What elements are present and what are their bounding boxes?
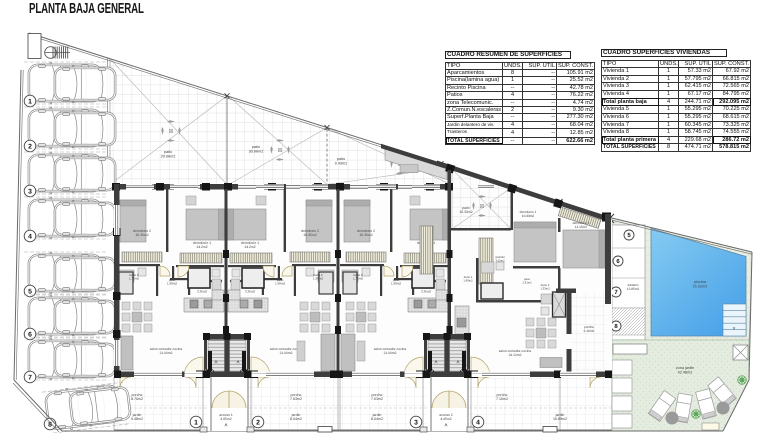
svg-text:˄: ˄ [434,360,438,366]
svg-text:˄: ˄ [444,423,448,429]
svg-text:dormitorio 211.15m2: dormitorio 211.15m2 [573,221,590,229]
svg-text:1: 1 [28,98,32,105]
svg-text:piscina25.52m2: piscina25.52m2 [693,280,708,288]
svg-text:jardin8.04m2: jardin8.04m2 [371,413,383,421]
svg-text:porche8.70m2: porche8.70m2 [131,393,143,401]
svg-text:bano 13.36m2: bano 13.36m2 [245,286,255,294]
svg-text:porche7.10m2: porche7.10m2 [496,393,508,401]
svg-text:dormitorio 210.35m2: dormitorio 210.35m2 [357,229,375,237]
svg-text:˅: ˅ [733,326,736,332]
svg-text:4: 4 [28,233,32,240]
svg-text:4: 4 [476,419,480,426]
svg-text:bano 13.36m2: bano 13.36m2 [421,286,431,294]
svg-text:jardin9.48m2: jardin9.48m2 [131,413,143,421]
svg-text:porche7.03m2: porche7.03m2 [371,393,383,401]
svg-text:˄: ˄ [236,360,240,366]
svg-text:dormitorio 210.35m2: dormitorio 210.35m2 [301,229,319,237]
svg-text:bano 11.90m2: bano 11.90m2 [463,275,473,282]
svg-text:acceso 14.05m2: acceso 14.05m2 [219,413,233,421]
svg-text:7: 7 [28,374,32,381]
svg-text:trastero12.85m2: trastero12.85m2 [627,283,640,291]
svg-text:acceso 24.45m2: acceso 24.45m2 [439,413,453,421]
svg-text:vestidor3.25m2: vestidor3.25m2 [495,255,505,262]
svg-text:bano 13.36m2: bano 13.36m2 [197,286,207,294]
svg-text:dormitorio 210.35m2: dormitorio 210.35m2 [133,229,151,237]
svg-text:dormitorio 110.33m2: dormitorio 110.33m2 [520,210,537,218]
svg-text:˄: ˄ [214,360,218,366]
svg-text:5: 5 [28,288,32,295]
svg-text:porche7.03m2: porche7.03m2 [290,393,302,401]
svg-text:2: 2 [28,143,32,150]
svg-text:zona jardin42.48m2: zona jardin42.48m2 [676,366,695,374]
svg-text:6: 6 [28,331,32,338]
svg-text:2: 2 [256,419,260,426]
svg-text:jardin8.04m2: jardin8.04m2 [290,413,302,421]
svg-text:1: 1 [194,419,198,426]
svg-text:˄: ˄ [224,423,228,429]
svg-text:3: 3 [28,188,32,195]
svg-text:bano 21.36m2: bano 21.36m2 [129,273,139,281]
svg-text:3: 3 [414,419,418,426]
svg-text:˄: ˄ [456,360,460,366]
svg-text:bano 21.33m2: bano 21.33m2 [540,283,550,290]
svg-text:bano 21.36m2: bano 21.36m2 [313,273,323,281]
svg-text:bano 21.36m2: bano 21.36m2 [353,273,363,281]
